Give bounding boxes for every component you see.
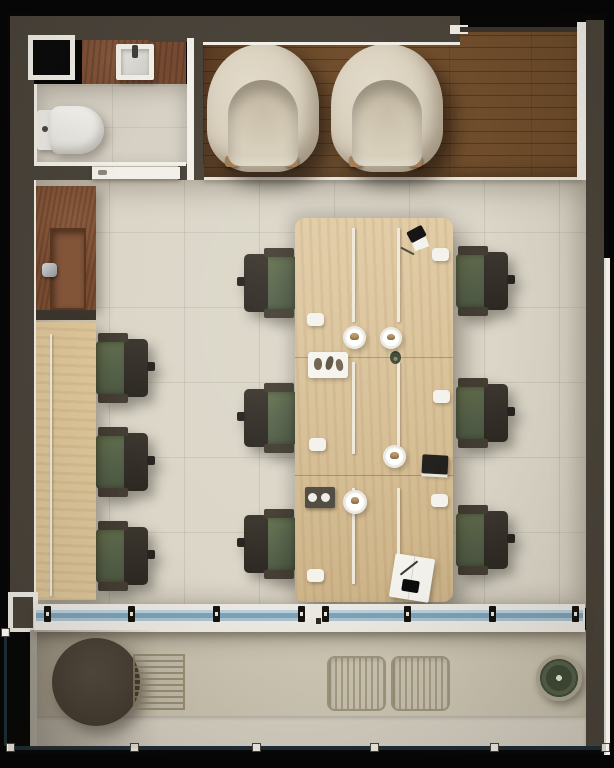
chair-armrest	[264, 509, 294, 518]
sideboard-faucet	[42, 263, 57, 277]
lounge-threshold	[203, 177, 583, 180]
wall-niche	[33, 40, 70, 75]
desk-tray	[433, 390, 450, 403]
washbasin	[116, 44, 154, 80]
desk-tray	[431, 494, 448, 507]
chair-caster	[147, 362, 155, 371]
window-head	[460, 27, 578, 32]
round-ottoman	[52, 638, 140, 726]
serving-plate	[343, 490, 367, 514]
toilet-bowl	[50, 106, 104, 154]
balustrade-post	[601, 743, 610, 752]
facade-door-tick	[316, 618, 321, 624]
wall-desk	[36, 322, 96, 600]
chair-armrest	[98, 582, 128, 591]
task-chair	[456, 378, 510, 448]
door-handle	[98, 170, 107, 175]
clip-center	[300, 612, 303, 616]
clip-center	[324, 612, 327, 616]
chair-armrest	[264, 248, 294, 257]
facade-glass-clip	[322, 606, 329, 622]
open-notebook	[389, 553, 435, 603]
task-chair	[242, 248, 296, 318]
chair-armrest	[458, 378, 488, 387]
mini-plant	[390, 351, 401, 364]
chair-armrest	[458, 246, 488, 255]
chair-armrest	[98, 333, 128, 342]
chair-back	[124, 339, 148, 397]
clip-center	[46, 612, 49, 616]
pastry-on-plate	[351, 497, 360, 504]
cup-tray	[305, 487, 335, 508]
chair-back	[484, 511, 508, 569]
clip-center	[130, 612, 133, 616]
chair-caster	[507, 275, 515, 284]
desk-tray	[309, 438, 326, 451]
pastry-on-plate	[390, 452, 398, 459]
facade-glass-clip	[404, 606, 411, 622]
right-wall-trim-lounge	[577, 22, 586, 180]
facade-glass-clip	[128, 606, 135, 622]
clip-center	[491, 612, 494, 616]
bathroom-bottom-wall	[10, 166, 92, 180]
balustrade-post	[6, 743, 15, 752]
chair-armrest	[458, 505, 488, 514]
floor-grille-right	[391, 656, 450, 711]
task-chair	[96, 427, 150, 497]
chair-caster	[237, 538, 245, 547]
potted-plant	[536, 655, 582, 701]
armchair-left	[207, 44, 319, 172]
floor-plan	[0, 0, 614, 768]
desk-tray	[307, 569, 324, 582]
left-wall	[10, 16, 34, 598]
right-wall-outer-trim	[604, 258, 610, 755]
task-chair	[242, 383, 296, 453]
clip-center	[215, 612, 218, 616]
chair-armrest	[98, 521, 128, 530]
chair-back	[484, 252, 508, 310]
right-wall	[586, 20, 604, 750]
desk-privacy-screen	[397, 228, 400, 322]
chair-back	[484, 384, 508, 442]
chair-armrest	[264, 309, 294, 318]
washbasin-faucet	[132, 45, 138, 58]
task-chair	[456, 505, 510, 575]
balustrade-post	[370, 743, 379, 752]
task-chair	[96, 521, 150, 591]
serving-plate	[383, 445, 406, 468]
pastry	[324, 355, 334, 370]
floor-grille-left	[327, 656, 386, 711]
pastry-on-plate	[350, 333, 358, 340]
facade-glass-clip	[489, 606, 496, 622]
smartphone-on-notebook	[401, 579, 420, 594]
chair-back	[124, 527, 148, 585]
central-bench-desk	[295, 218, 453, 602]
armchair-right	[331, 44, 443, 172]
terrace-edge-strip	[30, 630, 37, 748]
chair-armrest	[264, 570, 294, 579]
pastry-on-plate	[387, 334, 395, 341]
balustrade-rail	[6, 746, 606, 750]
cup-on-tray	[321, 493, 330, 502]
pastry-tray	[308, 352, 348, 378]
chair-armrest	[458, 307, 488, 316]
chair-armrest	[264, 444, 294, 453]
pastry	[314, 358, 322, 370]
facade-glass-clip	[213, 606, 220, 622]
armchair-seat	[352, 80, 422, 166]
chair-back	[244, 515, 268, 573]
timber-slat-mat	[133, 654, 185, 710]
chair-armrest	[98, 488, 128, 497]
chair-caster	[147, 550, 155, 559]
book-stack	[422, 454, 449, 474]
facade-glass-clip	[298, 606, 305, 622]
desk-privacy-screen	[397, 362, 400, 454]
bathroom-right-wall	[194, 38, 203, 180]
balustrade-rail-left	[4, 634, 7, 746]
armchair-seat	[228, 80, 298, 166]
chair-caster	[507, 534, 515, 543]
serving-plate	[380, 327, 402, 349]
task-chair	[456, 246, 510, 316]
chair-armrest	[98, 427, 128, 436]
toilet-flush-button	[42, 126, 48, 132]
chair-armrest	[458, 566, 488, 575]
chair-armrest	[458, 439, 488, 448]
sideboard-shadow-strip	[36, 310, 96, 320]
task-chair	[242, 509, 296, 579]
chair-armrest	[264, 383, 294, 392]
desk-privacy-screen	[352, 362, 355, 454]
chair-caster	[237, 412, 245, 421]
chair-caster	[507, 407, 515, 416]
stub-wall	[13, 597, 33, 628]
bathroom-bottom-trim	[34, 162, 186, 166]
facade-glass-clip	[44, 606, 51, 622]
desk-tray	[307, 313, 324, 326]
balustrade-post	[252, 743, 261, 752]
chair-armrest	[98, 394, 128, 403]
top-wall-trim	[203, 42, 460, 45]
chair-back	[244, 254, 268, 312]
balustrade-post	[490, 743, 499, 752]
balustrade-post	[130, 743, 139, 752]
balustrade-post	[1, 628, 10, 637]
desk-tray	[432, 248, 449, 261]
cup-on-tray	[308, 493, 317, 502]
chair-back	[244, 389, 268, 447]
chair-back	[124, 433, 148, 491]
desk-privacy-screen	[352, 228, 355, 322]
facade-glass-clip	[572, 606, 579, 622]
pastry	[335, 358, 344, 371]
bathroom-right-wall-trim	[187, 38, 194, 180]
clip-center	[406, 612, 409, 616]
serving-plate	[343, 326, 366, 349]
chair-caster	[237, 277, 245, 286]
clip-center	[574, 612, 577, 616]
toilet	[37, 106, 104, 154]
task-chair	[96, 333, 150, 403]
chair-caster	[147, 456, 155, 465]
desk-privacy-screen	[50, 334, 52, 596]
